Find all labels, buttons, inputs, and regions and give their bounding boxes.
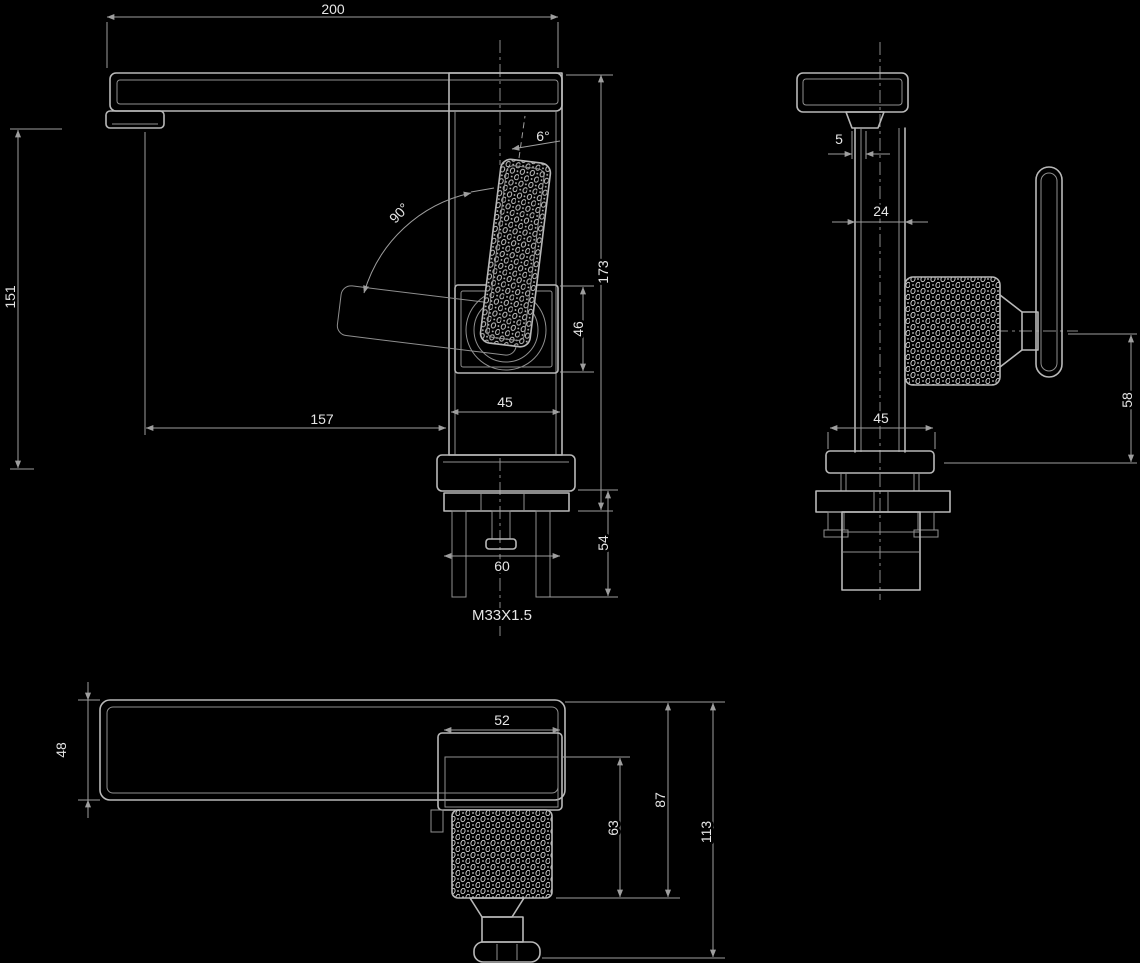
dim-spout-reach-label: 157 — [310, 411, 334, 427]
dim-side-base-width-label: 45 — [873, 410, 889, 426]
dim-overall-depth-label: 113 — [698, 821, 714, 844]
bottom-knurled-knob — [452, 810, 552, 898]
dim-overall-width-label: 200 — [321, 1, 345, 17]
dim-body-width-label: 45 — [497, 394, 513, 410]
dim-body-handle-depth-label: 87 — [652, 792, 668, 808]
dim-knurl-length-label: 63 — [605, 820, 621, 836]
dim-bottom-body-width-label: 52 — [494, 712, 510, 728]
dim-base-width-label: 60 — [494, 558, 510, 574]
dim-aerator-lip-label: 5 — [835, 131, 843, 147]
side-knurled-knob — [905, 277, 1000, 385]
technical-drawing-canvas: 90° 6° 200 151 157 — [0, 0, 1140, 963]
faucet-drawing: 90° 6° 200 151 157 — [0, 0, 1140, 963]
dim-body-height-label: 46 — [570, 321, 586, 337]
dim-under-counter-depth-label: 54 — [595, 535, 611, 551]
dim-handle-tilt-label: 6° — [536, 128, 549, 144]
dim-spout-width-label: 48 — [53, 742, 69, 758]
background — [0, 0, 1140, 963]
dim-body-depth-label: 24 — [873, 203, 889, 219]
dim-spout-height-label: 151 — [2, 285, 18, 309]
thread-callout-label: M33X1.5 — [472, 607, 532, 624]
dim-handle-height-label: 58 — [1119, 392, 1135, 408]
dim-overall-height-label: 173 — [595, 260, 611, 284]
